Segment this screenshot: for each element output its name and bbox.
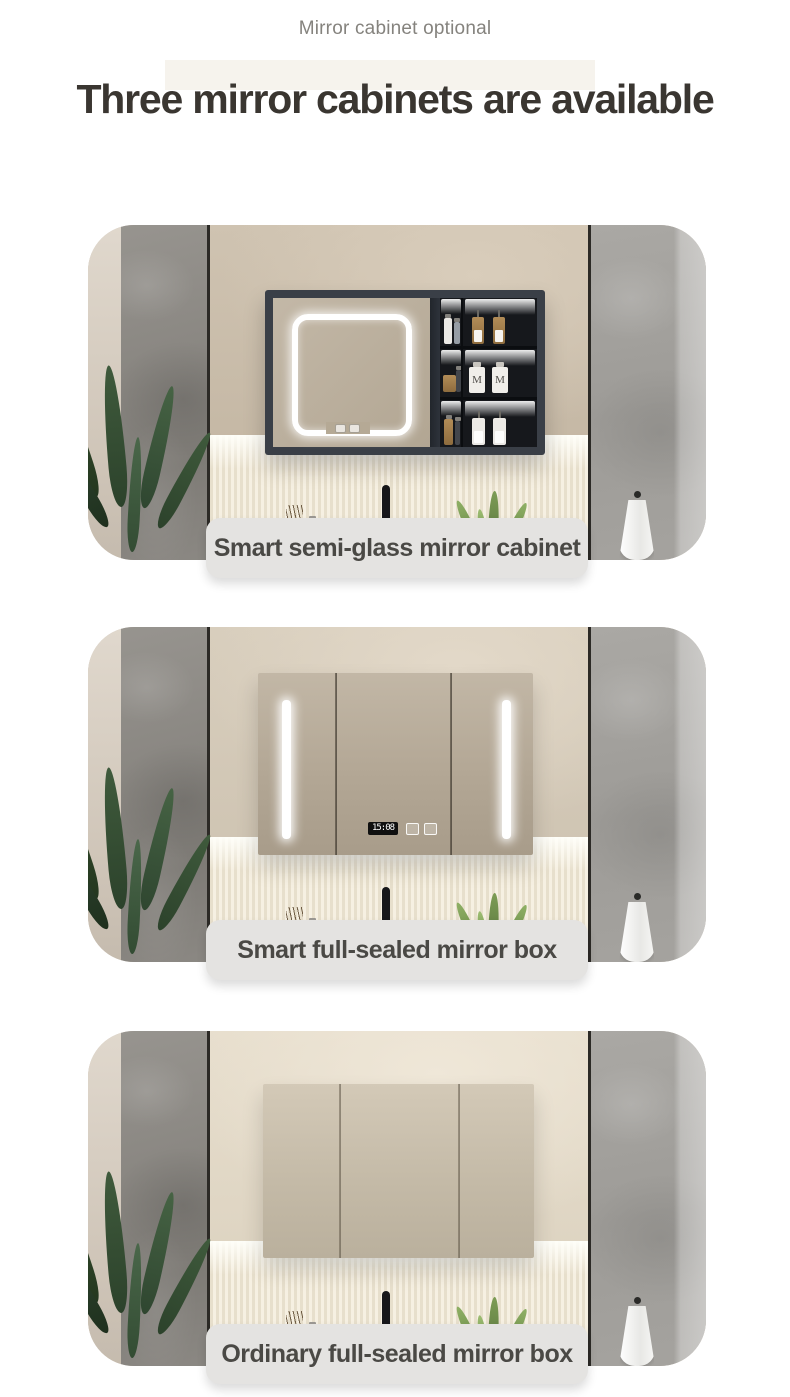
open-glass-shelves: M M bbox=[440, 298, 537, 447]
touch-button bbox=[424, 823, 437, 835]
bottle bbox=[472, 418, 485, 445]
mirror-cabinet-smart-full-sealed: 15:08 bbox=[258, 673, 533, 855]
bottle bbox=[444, 318, 452, 344]
towel-hook bbox=[634, 1297, 641, 1304]
bathroom-scene: M M bbox=[88, 225, 706, 560]
bottle bbox=[493, 317, 505, 344]
clock-display: 15:08 bbox=[368, 822, 398, 835]
card-label-pill: Smart full-sealed mirror box bbox=[206, 920, 588, 980]
plant bbox=[88, 365, 207, 560]
plant bbox=[88, 1171, 207, 1366]
plant bbox=[88, 767, 207, 962]
bottle bbox=[493, 418, 506, 445]
bottle-monogram: M bbox=[469, 367, 485, 393]
kicker-text: Mirror cabinet optional bbox=[0, 18, 790, 40]
bathroom-scene bbox=[88, 1031, 706, 1366]
mirror-cabinet-smart-semi-glass: M M bbox=[265, 290, 545, 455]
bottle bbox=[455, 421, 460, 445]
door-seam bbox=[450, 673, 452, 855]
marble-panel-right bbox=[591, 225, 706, 560]
led-mirror-door bbox=[273, 298, 430, 447]
towel-hook bbox=[634, 491, 641, 498]
led-strip bbox=[502, 700, 511, 839]
bottle bbox=[444, 419, 453, 445]
mirror-cabinet-ordinary-full-sealed bbox=[263, 1084, 534, 1258]
card-label-pill: Smart semi-glass mirror cabinet bbox=[206, 518, 588, 578]
card-label: Ordinary full-sealed mirror box bbox=[221, 1340, 572, 1369]
bathroom-scene: 15:08 bbox=[88, 627, 706, 962]
touch-button bbox=[349, 424, 360, 433]
door-seam bbox=[458, 1084, 460, 1258]
door-seam bbox=[335, 673, 337, 855]
marble-panel-right bbox=[591, 627, 706, 962]
bottle bbox=[472, 317, 484, 344]
door-seam bbox=[339, 1084, 341, 1258]
bottle bbox=[443, 375, 456, 392]
towel-hook bbox=[634, 893, 641, 900]
card-label-pill: Ordinary full-sealed mirror box bbox=[206, 1324, 588, 1384]
touch-button bbox=[406, 823, 419, 835]
touch-button bbox=[335, 424, 346, 433]
sliding-door-track bbox=[430, 298, 440, 447]
bottle-monogram: M bbox=[492, 367, 508, 393]
page-title: Three mirror cabinets are available bbox=[0, 76, 790, 123]
led-ring-gap bbox=[326, 422, 370, 434]
product-card-ordinary-full-sealed: Ordinary full-sealed mirror box bbox=[88, 1031, 706, 1366]
card-label: Smart full-sealed mirror box bbox=[237, 936, 556, 965]
led-light-ring bbox=[292, 314, 412, 436]
product-card-smart-full-sealed: 15:08 Smart full-sealed mirror box bbox=[88, 627, 706, 962]
card-label: Smart semi-glass mirror cabinet bbox=[214, 534, 581, 563]
bottle bbox=[454, 322, 460, 344]
product-card-smart-semi-glass: M M Smart semi-glass mirror cabinet bbox=[88, 225, 706, 560]
led-strip bbox=[282, 700, 291, 839]
marble-panel-right bbox=[591, 1031, 706, 1366]
